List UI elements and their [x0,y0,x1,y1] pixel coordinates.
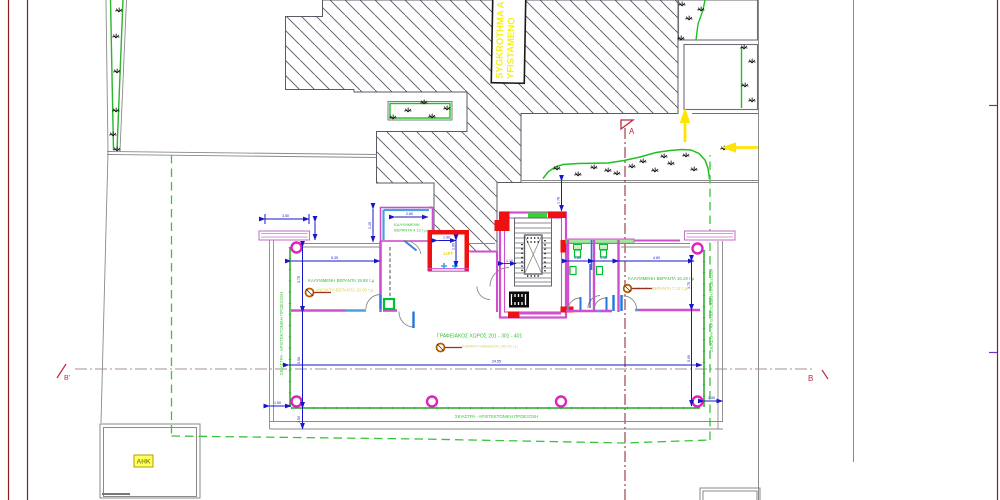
svg-text:2.80: 2.80 [406,212,413,216]
svg-text:1.50: 1.50 [708,396,715,400]
svg-text:A: A [629,127,635,136]
svg-text:3.75: 3.75 [687,282,691,289]
svg-text:ΑΗΚ: ΑΗΚ [137,459,151,466]
svg-text:ΚΑΘΑΡΟ ΕΜΒΑΔΟΝ 150.00 τ.μ: ΚΑΘΑΡΟ ΕΜΒΑΔΟΝ 150.00 τ.μ [462,344,518,349]
svg-text:1.50: 1.50 [274,401,281,405]
svg-text:1.45: 1.45 [368,222,372,229]
svg-text:ΣΚΙΑΣΤΡΑ - ΑΡΧΙΤΕΚΤΟΝΙΚΗ ΠΡΟΕΞ: ΣΚΙΑΣΤΡΑ - ΑΡΧΙΤΕΚΤΟΝΙΚΗ ΠΡΟΕΞΟΧΗ [709,269,714,352]
svg-text:YFISTAMENO: YFISTAMENO [505,17,517,79]
svg-text:1.78: 1.78 [557,197,561,204]
svg-text:5.00: 5.00 [687,355,691,362]
svg-text:1.10: 1.10 [600,256,607,260]
svg-text:24.55: 24.55 [492,360,501,364]
svg-text:1.85: 1.85 [574,256,581,260]
svg-text:3.50: 3.50 [282,214,289,218]
svg-text:Β': Β' [64,375,70,382]
svg-text:1.10: 1.10 [506,259,513,263]
svg-text:ΚΑΛΥΜΜΕΝΗ: ΚΑΛΥΜΜΕΝΗ [394,222,420,227]
svg-text:ΣΚΙΑΣΤΡΑ - ΑΡΧΙΤΕΚΤΟΝΙΚΗ ΠΡΟΕΞ: ΣΚΙΑΣΤΡΑ - ΑΡΧΙΤΕΚΤΟΝΙΚΗ ΠΡΟΕΞΟΧΗ [279,292,284,375]
svg-text:1.90: 1.90 [443,236,450,240]
svg-text:1.60: 1.60 [452,243,456,250]
svg-text:ΚΑΛΥΜΜΕΝΗ ΒΕΡΑΝΤΑ 16.19 τ.μ: ΚΑΛΥΜΜΕΝΗ ΒΕΡΑΝΤΑ 16.19 τ.μ [628,276,695,281]
svg-text:ΚΑΛΥΜΜΕΝΗ ΒΕΡΑΝΤΑ 19.98 τ.μ: ΚΑΛΥΜΜΕΝΗ ΒΕΡΑΝΤΑ 19.98 τ.μ [308,278,375,283]
svg-text:4.80: 4.80 [653,256,660,260]
svg-text:3.75: 3.75 [297,276,301,283]
svg-text:ΓΡΑΦΕΙΑΚΟΣ ΧΩΡΟΣ 201 - 301 -: ΓΡΑΦΕΙΑΚΟΣ ΧΩΡΟΣ 201 - 301 - 401 [437,334,522,340]
svg-text:B: B [808,374,813,383]
svg-text:ΒΕΡΑΝΤΑ 4.13 τ.μ: ΒΕΡΑΝΤΑ 4.13 τ.μ [394,228,428,233]
svg-text:5.00: 5.00 [297,357,301,364]
svg-text:1.50: 1.50 [297,416,301,423]
svg-text:5.35: 5.35 [331,256,338,260]
svg-text:ΣΚΙΑΣΤΡΑ - ΑΡΧΙΤΕΚΤΟΝΙΚΗ ΠΡΟΕΞ: ΣΚΙΑΣΤΡΑ - ΑΡΧΙΤΕΚΤΟΝΙΚΗ ΠΡΟΕΞΟΧΗ [455,414,538,419]
svg-text:LIFT: LIFT [444,251,454,256]
svg-text:+ ΑΝΟΙΚΤΗ ΒΕΡΑΝΤΑ 10.05 τ.μ: + ΑΝΟΙΚΤΗ ΒΕΡΑΝΤΑ 10.05 τ.μ [312,288,374,293]
